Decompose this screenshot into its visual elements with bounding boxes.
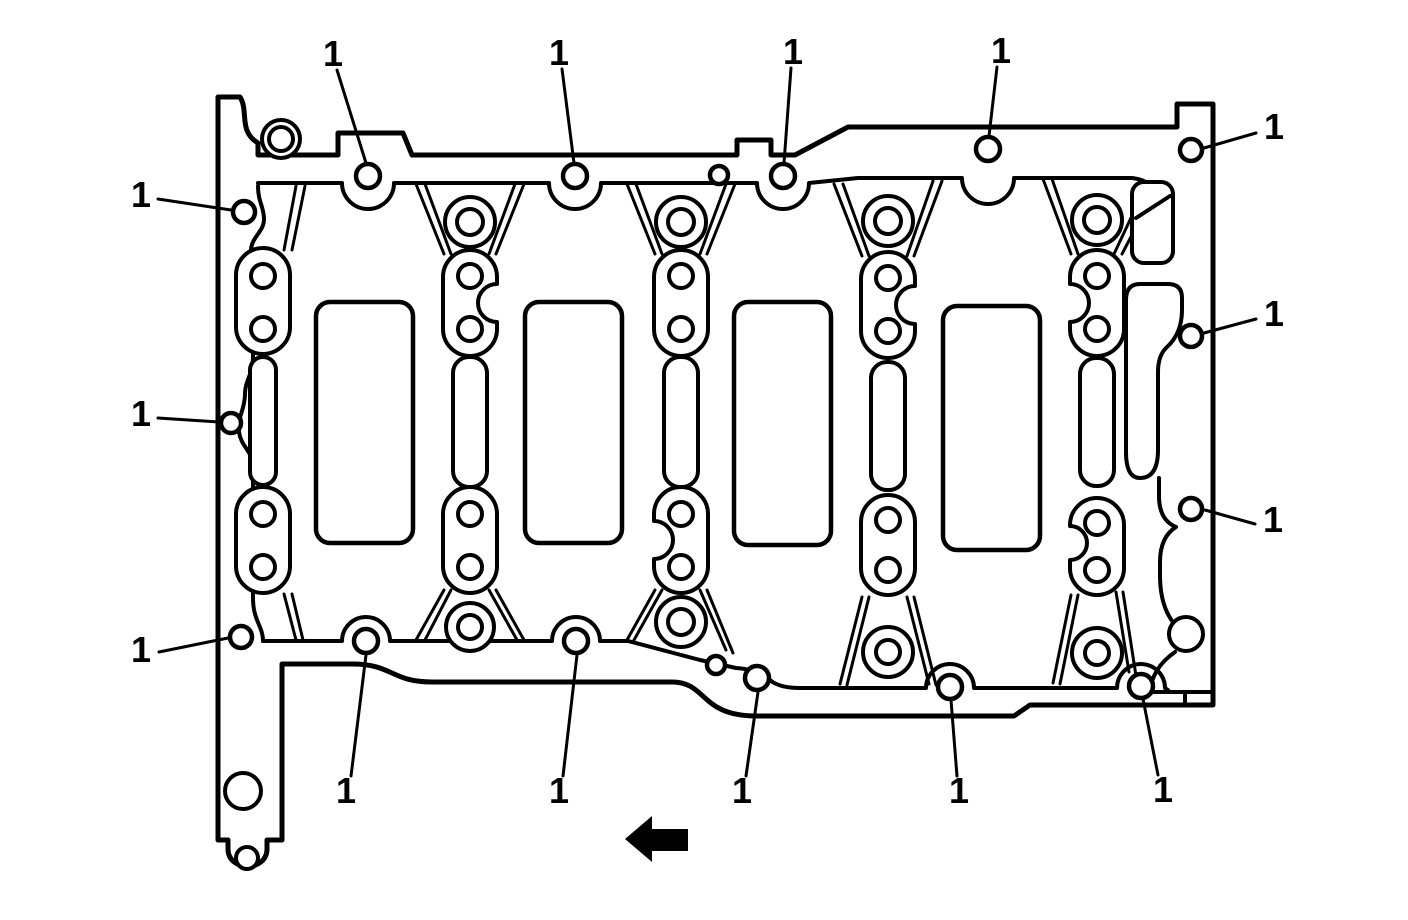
callout-label-15: 1 xyxy=(1153,769,1173,810)
callout-label-6: 1 xyxy=(1264,293,1284,334)
callout-leader-line xyxy=(351,655,366,776)
callout-label-12: 1 xyxy=(549,770,569,811)
engine-block-diagram: 111111111111111 xyxy=(0,0,1408,920)
engine-block-figure: 111111111111111 xyxy=(0,0,1408,920)
callout-leader-line xyxy=(158,418,219,422)
corner-bore xyxy=(1169,617,1203,651)
tab-hole xyxy=(236,847,258,869)
wedge-boss xyxy=(1132,182,1173,263)
callout-leader-line xyxy=(562,69,574,163)
callout-label-8: 1 xyxy=(131,174,151,215)
callout-leader-line xyxy=(1143,699,1158,775)
callout-label-9: 1 xyxy=(131,393,151,434)
callout-label-5: 1 xyxy=(1264,106,1284,147)
callout-label-7: 1 xyxy=(1263,499,1283,540)
callout-leader-line xyxy=(784,68,791,163)
end-plate-hole xyxy=(225,773,261,809)
callout-label-4: 1 xyxy=(991,30,1011,71)
front-direction-arrow-icon xyxy=(625,816,688,862)
callout-label-10: 1 xyxy=(131,629,151,670)
callout-label-1: 1 xyxy=(323,33,343,74)
block-outline xyxy=(218,97,1213,869)
callout-label-13: 1 xyxy=(732,770,752,811)
callout-label-14: 1 xyxy=(949,770,969,811)
callout-label-11: 1 xyxy=(336,770,356,811)
callout-label-3: 1 xyxy=(783,31,803,72)
callout-label-2: 1 xyxy=(549,32,569,73)
